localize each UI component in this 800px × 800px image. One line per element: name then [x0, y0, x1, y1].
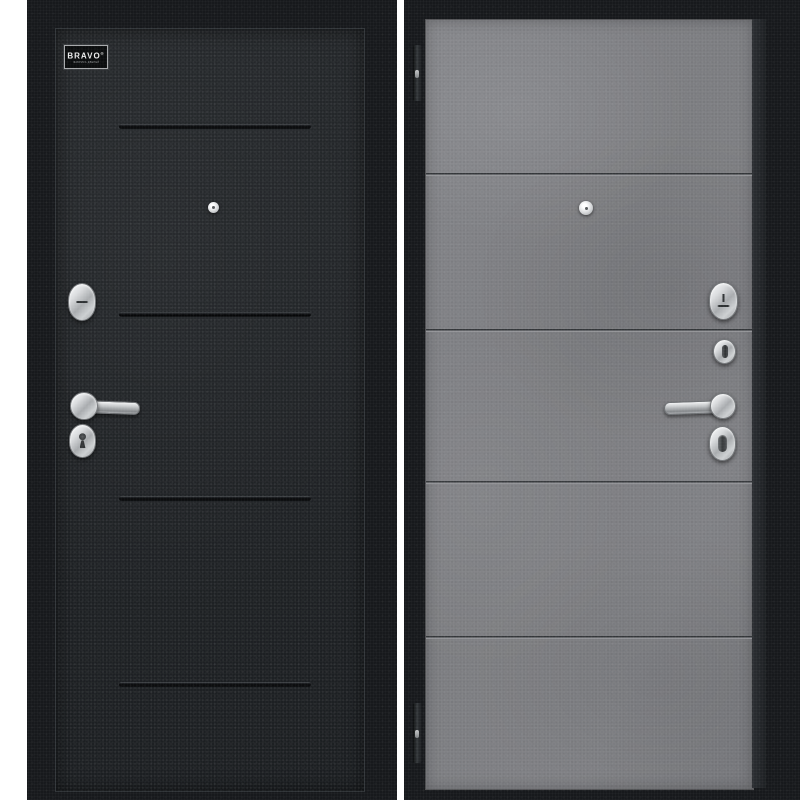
peephole: [208, 202, 219, 213]
right-door-leaf: [425, 19, 754, 790]
thumbturn-escutcheon-back: [709, 282, 738, 320]
keyhole-stem: [80, 440, 86, 448]
thumbturn-indicator-vertical: [723, 294, 725, 302]
thumbturn-escutcheon: [68, 283, 96, 321]
door-edge-strip: [752, 19, 766, 788]
night-latch-escutcheon: [709, 426, 736, 461]
brand-logo-plate: BRAVO® ФАБРИКА ДВЕРЕЙ: [64, 45, 108, 69]
right-groove-1: [426, 173, 753, 176]
door-product-photo: BRAVO® ФАБРИКА ДВЕРЕЙ: [0, 0, 800, 800]
keyhole: [79, 433, 87, 448]
brand-logo-text: BRAVO®: [67, 50, 104, 61]
night-latch-knob: [718, 435, 727, 452]
left-groove-1: [119, 124, 311, 129]
registered-mark: ®: [101, 51, 105, 56]
thumbturn-slot: [76, 301, 89, 303]
right-groove-4: [426, 636, 753, 639]
thumbturn-indicator: [717, 294, 730, 308]
brand-logo-subtext: ФАБРИКА ДВЕРЕЙ: [73, 62, 99, 64]
right-groove-3: [426, 481, 753, 484]
peephole-back: [579, 201, 593, 215]
brand-name: BRAVO: [67, 51, 100, 60]
left-groove-3: [119, 496, 311, 501]
door-handle-rose-back: [710, 393, 736, 419]
cylinder-lock: [713, 339, 736, 364]
hinge-top: [413, 45, 422, 101]
left-door-panel: BRAVO® ФАБРИКА ДВЕРЕЙ: [27, 0, 397, 800]
keyhole-escutcheon: [69, 424, 96, 458]
right-groove-2: [426, 329, 753, 332]
left-groove-4: [119, 682, 311, 687]
cylinder-keyway: [722, 345, 728, 358]
door-handle-rose: [70, 392, 98, 420]
hinge-bottom: [413, 703, 422, 763]
right-door-panel: [404, 0, 800, 800]
left-door-leaf: BRAVO® ФАБРИКА ДВЕРЕЙ: [55, 28, 365, 792]
left-groove-2: [119, 312, 311, 317]
keyhole-head: [79, 433, 86, 440]
thumbturn-indicator-horizontal: [717, 305, 730, 307]
